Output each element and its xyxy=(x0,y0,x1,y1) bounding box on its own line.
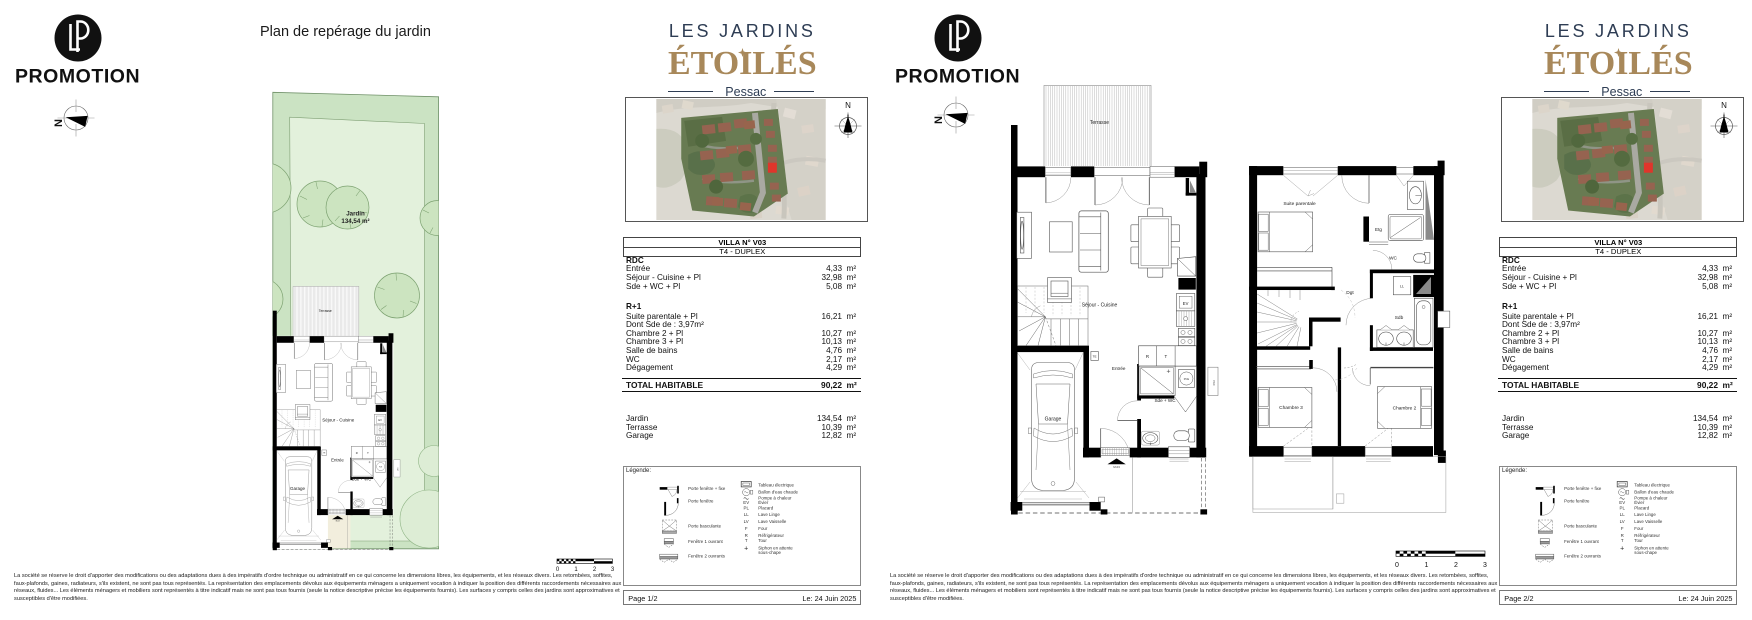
svg-text:Tableau électrique: Tableau électrique xyxy=(759,483,795,488)
svg-text:WC: WC xyxy=(1389,256,1398,262)
svg-text:Sdb: Sdb xyxy=(1395,315,1404,321)
svg-text:T: T xyxy=(745,538,748,543)
svg-text:T: T xyxy=(1621,538,1624,543)
svg-text:Séjour - Cuisine: Séjour - Cuisine xyxy=(1082,303,1118,309)
svg-text:PL: PL xyxy=(744,505,750,510)
svg-text:Porte fenêtre: Porte fenêtre xyxy=(1564,498,1590,503)
svg-text:2: 2 xyxy=(1454,562,1458,569)
svg-text:Porte fenêtre: Porte fenêtre xyxy=(688,498,714,503)
svg-text:Dgt: Dgt xyxy=(1346,290,1354,296)
svg-text:Fenêtre 2 ouvrants: Fenêtre 2 ouvrants xyxy=(1564,554,1602,559)
svg-text:Entrée: Entrée xyxy=(1112,366,1126,371)
svg-text:Porte fenêtre + fixe: Porte fenêtre + fixe xyxy=(688,486,726,491)
svg-text:sous-chape: sous-chape xyxy=(1635,550,1658,555)
svg-text:Porte basculante: Porte basculante xyxy=(1564,523,1598,528)
svg-text:Ballon d'eau chaude: Ballon d'eau chaude xyxy=(759,490,799,495)
svg-text:Chambre 2: Chambre 2 xyxy=(1393,406,1417,412)
svg-text:F: F xyxy=(1621,526,1624,531)
svg-text:Chambre 3: Chambre 3 xyxy=(1279,405,1303,411)
svg-text:Tableau électrique: Tableau électrique xyxy=(1635,483,1671,488)
svg-text:Terrasse: Terrasse xyxy=(1090,120,1109,126)
svg-text:1: 1 xyxy=(1425,562,1429,569)
svg-text:LV: LV xyxy=(744,519,749,524)
svg-text:LL: LL xyxy=(1400,285,1404,289)
svg-text:LL: LL xyxy=(1620,512,1625,517)
svg-text:Terrasse: Terrasse xyxy=(319,309,332,313)
svg-text:Tour: Tour xyxy=(759,538,768,543)
svg-text:Ballon d'eau chaude: Ballon d'eau chaude xyxy=(1635,490,1675,495)
svg-text:3: 3 xyxy=(611,567,615,573)
svg-text:Porte fenêtre + fixe: Porte fenêtre + fixe xyxy=(1564,486,1602,491)
svg-text:Etg: Etg xyxy=(1375,227,1382,232)
svg-text:sous-chape: sous-chape xyxy=(759,550,782,555)
svg-text:EV: EV xyxy=(744,500,750,505)
svg-text:EV: EV xyxy=(1620,500,1626,505)
svg-text:2: 2 xyxy=(593,567,597,573)
svg-text:Placard: Placard xyxy=(759,505,774,510)
svg-text:Four: Four xyxy=(1635,526,1645,531)
svg-text:+: + xyxy=(744,545,748,552)
svg-text:Fenêtre 2 ouvrants: Fenêtre 2 ouvrants xyxy=(688,554,726,559)
svg-text:Évier: Évier xyxy=(759,500,770,505)
svg-text:0: 0 xyxy=(1395,562,1399,569)
svg-text:Garage: Garage xyxy=(290,486,306,491)
svg-text:Sde + WC: Sde + WC xyxy=(1154,398,1176,403)
svg-text:PL: PL xyxy=(1620,505,1626,510)
svg-text:3: 3 xyxy=(1483,562,1487,569)
svg-text:+: + xyxy=(1620,545,1624,552)
svg-text:Lave Linge: Lave Linge xyxy=(759,512,781,517)
svg-text:0: 0 xyxy=(556,567,560,573)
svg-text:Séjour - Cuisine: Séjour - Cuisine xyxy=(322,418,355,423)
svg-text:Lave Linge: Lave Linge xyxy=(1635,512,1657,517)
svg-text:Porte basculante: Porte basculante xyxy=(688,523,722,528)
svg-text:LL: LL xyxy=(744,512,749,517)
svg-text:Lave Vaisselle: Lave Vaisselle xyxy=(1635,519,1664,524)
svg-text:Lave Vaisselle: Lave Vaisselle xyxy=(759,519,788,524)
svg-text:Fenêtre 1 ouvrant: Fenêtre 1 ouvrant xyxy=(1564,539,1599,544)
svg-text:Fenêtre 1 ouvrant: Fenêtre 1 ouvrant xyxy=(688,539,723,544)
svg-text:Tour: Tour xyxy=(1635,538,1644,543)
svg-text:Entrée: Entrée xyxy=(331,458,344,463)
svg-text:LV: LV xyxy=(1620,519,1625,524)
svg-text:Four: Four xyxy=(759,526,769,531)
svg-text:Garage: Garage xyxy=(1045,417,1062,423)
svg-text:Sde + WC: Sde + WC xyxy=(352,477,372,482)
svg-text:1: 1 xyxy=(574,567,578,573)
svg-text:Suite parentale: Suite parentale xyxy=(1283,201,1316,207)
svg-text:Placard: Placard xyxy=(1635,505,1650,510)
svg-text:Évier: Évier xyxy=(1635,500,1646,505)
svg-text:F: F xyxy=(745,526,748,531)
